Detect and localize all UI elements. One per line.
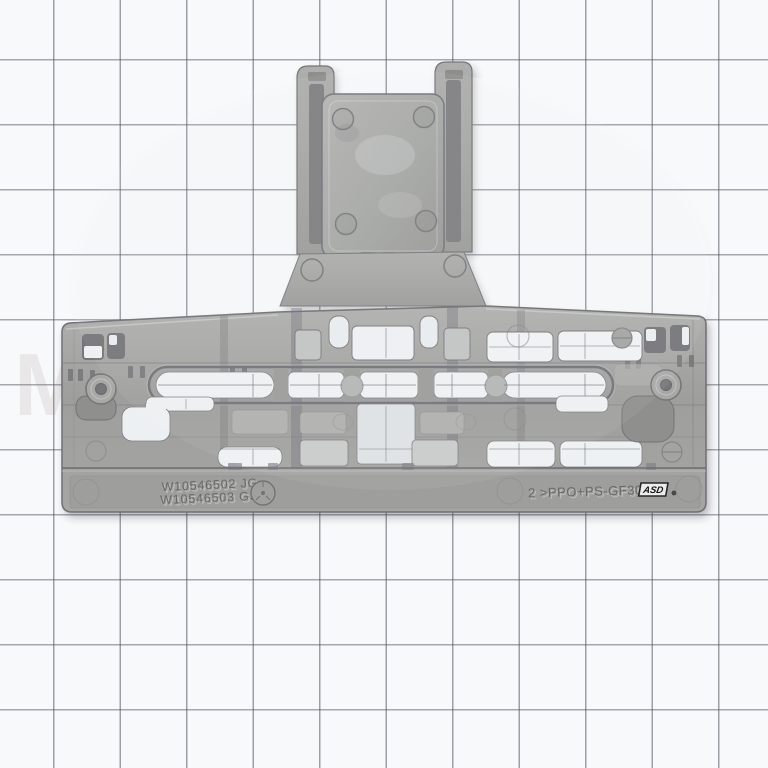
mold-date-wheel <box>251 481 275 505</box>
svg-text:ASD: ASD <box>641 485 664 496</box>
dishwasher-rack-adjuster-part: W10546502 JG W10546502 JG W10546503 GS W… <box>0 0 768 768</box>
photo-of-part-on-grid-paper: MarconeParts <box>0 0 768 768</box>
part-body-group: W10546502 JG W10546502 JG W10546503 GS W… <box>62 62 710 512</box>
molded-logo-badge: ASD <box>639 483 668 496</box>
svg-text:2 >PPO+PS-GF30<: 2 >PPO+PS-GF30< <box>528 482 651 500</box>
part-number-marking: W10546502 JG W10546502 JG W10546503 GS W… <box>159 476 261 509</box>
light-sheen <box>70 70 710 490</box>
material-code-marking: 2 >PPO+PS-GF30< 2 >PPO+PS-GF30< <box>528 482 653 502</box>
